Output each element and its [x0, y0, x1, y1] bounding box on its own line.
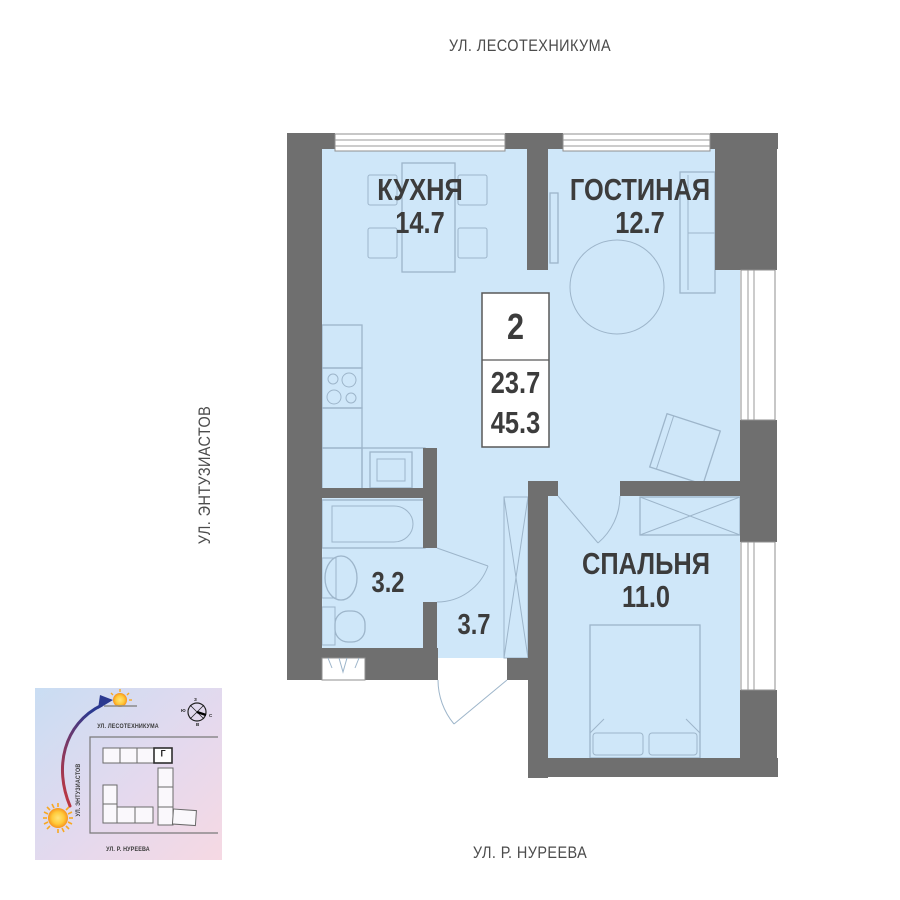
bedroom-name: СПАЛЬНЯ	[582, 547, 710, 582]
kitchen-window	[335, 134, 505, 151]
room-bedroom-floor	[548, 481, 740, 758]
kitchen-area: 14.7	[395, 206, 444, 241]
living-name: ГОСТИНАЯ	[570, 173, 710, 208]
badge-rooms-count: 2	[507, 308, 524, 348]
bedroom-window-right	[741, 542, 775, 690]
shaft-niche	[322, 658, 365, 680]
minimap-street-left: УЛ. ЭНТУЗИАСТОВ	[76, 764, 82, 817]
bedroom-area: 11.0	[622, 580, 670, 615]
room-label-bathroom: 3.2	[371, 566, 404, 599]
hallway-area: 3.7	[457, 608, 490, 641]
street-bottom-text: УЛ. Р. НУРЕЕВА	[473, 844, 587, 862]
minimap-building-letter: Г	[160, 748, 165, 758]
info-badge: 2 23.7 45.3	[482, 293, 549, 447]
street-label-top: УЛ. ЛЕСОТЕХНИКУМА	[449, 37, 611, 55]
compass-s: Ю	[181, 708, 186, 713]
entrance-door	[438, 680, 507, 724]
living-window-right	[741, 270, 775, 420]
street-top-text: УЛ. ЛЕСОТЕХНИКУМА	[449, 37, 611, 55]
compass-w: З	[194, 697, 197, 702]
minimap: Г	[35, 688, 222, 860]
minimap-street-top: УЛ. ЛЕСОТЕХНИКУМА	[97, 724, 159, 730]
living-window-top	[563, 134, 710, 151]
floorplan-svg: УЛ. ЛЕСОТЕХНИКУМА УЛ. ЭНТУЗИАСТОВ УЛ. Р.…	[0, 0, 900, 900]
floorplan-page: УЛ. ЛЕСОТЕХНИКУМА УЛ. ЭНТУЗИАСТОВ УЛ. Р.…	[0, 0, 900, 900]
badge-total-area: 45.3	[491, 406, 540, 441]
minimap-street-bottom: УЛ. Р. НУРЕЕВА	[106, 847, 150, 853]
bathroom-door-gap-floor	[423, 548, 437, 602]
living-area: 12.7	[615, 206, 664, 241]
bathroom-area: 3.2	[371, 566, 404, 599]
street-label-bottom: УЛ. Р. НУРЕЕВА	[473, 844, 587, 862]
kitchen-name: КУХНЯ	[377, 173, 462, 208]
street-label-left: УЛ. ЭНТУЗИАСТОВ	[196, 406, 214, 544]
room-label-hallway: 3.7	[457, 608, 490, 641]
badge-living-area: 23.7	[491, 366, 540, 401]
street-left-text: УЛ. ЭНТУЗИАСТОВ	[196, 406, 214, 544]
